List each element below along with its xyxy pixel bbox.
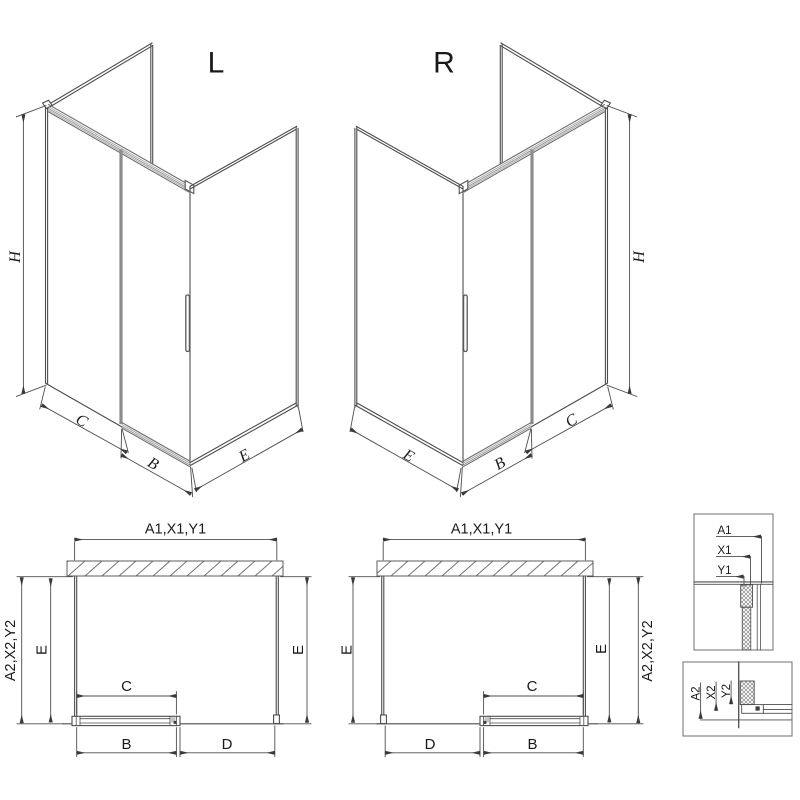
dim-label-c-right: C: [563, 411, 581, 431]
plan-left-c-label: C: [121, 678, 132, 695]
dim-label-h-left: H: [7, 250, 24, 264]
drawing-geometry: [16, 43, 792, 757]
dim-label-c-left: C: [73, 411, 91, 431]
plan-right-depth-far-label: E: [338, 645, 355, 655]
plan-right-d-label: D: [425, 736, 436, 753]
plan-right-b-label: B: [527, 736, 537, 753]
view-title-right: R: [433, 47, 455, 80]
view-title-left: L: [208, 47, 225, 80]
plan-left-wall-hatch: [67, 561, 283, 576]
plan-left-d-label: D: [222, 736, 233, 753]
technical-drawing-page: L H C B E R H C B E A1,X1,Y1 A2,X2,Y2 E …: [0, 0, 800, 800]
dim-label-e-left: E: [235, 446, 253, 466]
iso-view-right-geometry: [350, 43, 637, 497]
plan-right-depth-outer-label: A2,X2,Y2: [640, 620, 656, 681]
dim-label-h-right: H: [631, 250, 648, 264]
drawing-labels: L H C B E R H C B E A1,X1,Y1 A2,X2,Y2 E …: [3, 47, 733, 753]
plan-left-depth-inner-label: E: [33, 645, 50, 655]
plan-right-depth-inner-label: E: [593, 644, 610, 654]
plan-left-depth-outer-label: A2,X2,Y2: [3, 620, 19, 681]
detail-wall-x1-label: X1: [718, 545, 732, 557]
dim-label-b-left: B: [145, 454, 162, 474]
plan-right-c-label: C: [527, 678, 538, 695]
detail-wall-profile: [694, 514, 773, 650]
detail-floor-a2-label: A2: [691, 686, 703, 700]
plan-left-depth-far-label: E: [290, 645, 307, 655]
detail-floor-x2-label: X2: [706, 685, 718, 699]
detail-wall-y1-label: Y1: [718, 565, 732, 577]
dim-label-e-right: E: [399, 446, 417, 466]
plan-right-wall-hatch: [377, 561, 593, 576]
plan-left-width-label: A1,X1,Y1: [145, 522, 206, 538]
plan-left-b-label: B: [121, 736, 131, 753]
dim-label-b-right: B: [492, 454, 509, 474]
detail-floor-y2-label: Y2: [721, 684, 733, 698]
iso-view-left-geometry: [16, 43, 303, 497]
shower-enclosure-diagram: L H C B E R H C B E A1,X1,Y1 A2,X2,Y2 E …: [0, 0, 800, 800]
plan-right-width-label: A1,X1,Y1: [451, 522, 512, 538]
detail-wall-a1-label: A1: [718, 525, 732, 537]
